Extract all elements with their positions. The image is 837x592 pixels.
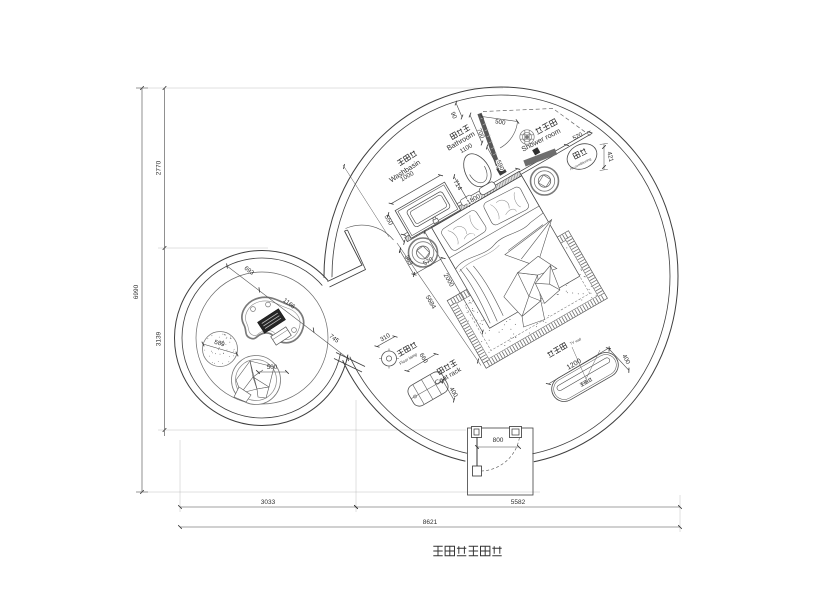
svg-text:2770: 2770	[156, 160, 163, 175]
svg-text:6990: 6990	[133, 284, 140, 299]
svg-text:3139: 3139	[156, 331, 163, 346]
svg-text:5582: 5582	[511, 499, 526, 506]
svg-text:500: 500	[267, 364, 278, 371]
svg-text:500: 500	[495, 118, 507, 126]
svg-text:8621: 8621	[423, 519, 438, 526]
svg-text:3033: 3033	[261, 499, 276, 506]
svg-text:800: 800	[493, 437, 504, 444]
